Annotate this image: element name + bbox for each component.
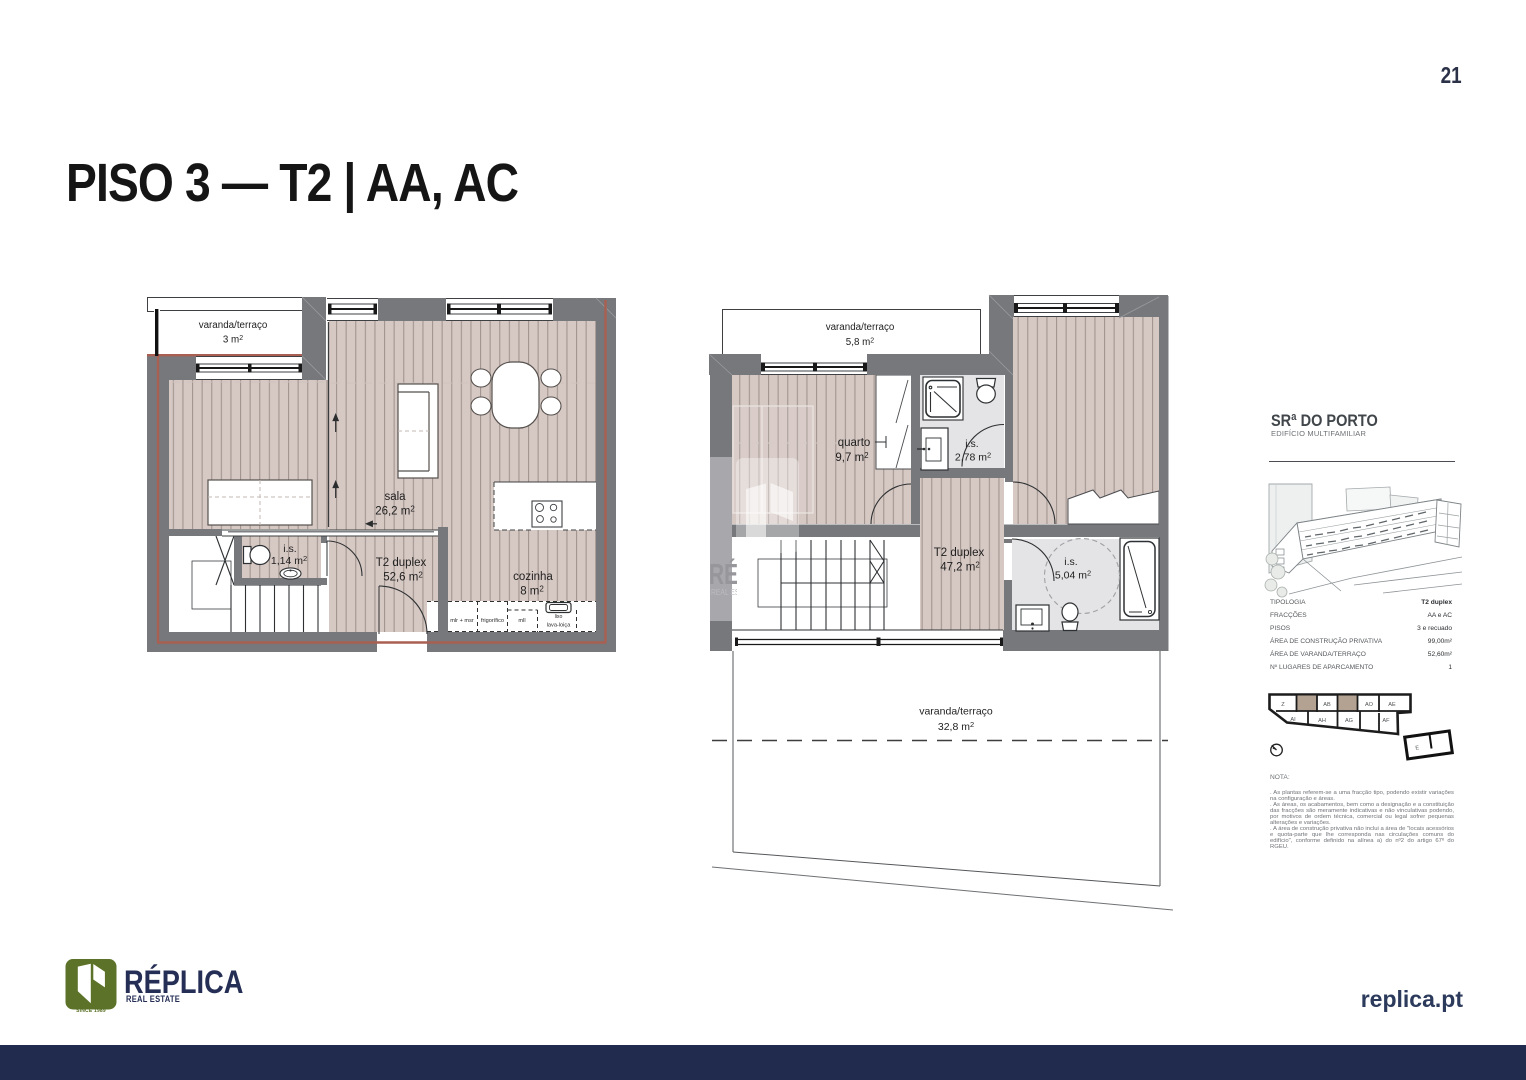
svg-text:9,7 m2: 9,7 m2	[835, 451, 869, 464]
svg-text:i.s.: i.s.	[283, 543, 296, 555]
svg-text:REAL ESTATE: REAL ESTATE	[711, 587, 756, 597]
svg-text:AO: AO	[1365, 702, 1374, 708]
svg-text:32,8 m2: 32,8 m2	[938, 720, 974, 733]
svg-text:mlr + msr: mlr + msr	[450, 618, 474, 624]
svg-text:5,8 m2: 5,8 m2	[846, 337, 875, 348]
svg-text:Z: Z	[1281, 702, 1285, 708]
svg-text:frigorífico: frigorífico	[481, 618, 504, 624]
svg-text:26,2 m2: 26,2 m2	[375, 505, 415, 518]
svg-text:2,78 m2: 2,78 m2	[955, 451, 991, 464]
svg-text:1,14 m2: 1,14 m2	[271, 554, 307, 567]
svg-text:AI: AI	[1290, 717, 1296, 723]
svg-text:sala: sala	[384, 491, 406, 503]
svg-text:RÉPLICA: RÉPLICA	[709, 558, 801, 591]
svg-text:i.s.: i.s.	[965, 438, 978, 450]
svg-text:varanda/terraço: varanda/terraço	[826, 322, 895, 333]
svg-text:varanda/terraço: varanda/terraço	[199, 320, 268, 331]
svg-text:lixo: lixo	[555, 614, 563, 620]
svg-text:varanda/terraço: varanda/terraço	[919, 706, 993, 718]
svg-text:cozinha: cozinha	[513, 571, 553, 583]
svg-text:mll: mll	[518, 618, 525, 624]
svg-text:T2 duplex: T2 duplex	[934, 547, 985, 559]
svg-text:i.s.: i.s.	[1064, 556, 1077, 568]
svg-text:AB: AB	[1323, 702, 1331, 708]
svg-text:52,6 m2: 52,6 m2	[383, 571, 423, 584]
svg-text:AF: AF	[1382, 718, 1390, 724]
svg-text:AH: AH	[1318, 718, 1326, 724]
svg-text:AE: AE	[1388, 702, 1396, 708]
svg-text:quarto: quarto	[838, 437, 871, 449]
svg-text:lava-loiça: lava-loiça	[547, 623, 572, 629]
svg-text:47,2 m2: 47,2 m2	[940, 561, 980, 574]
svg-text:T2 duplex: T2 duplex	[376, 557, 427, 569]
svg-text:AG: AG	[1345, 718, 1353, 724]
svg-text:5,04 m2: 5,04 m2	[1055, 569, 1091, 582]
svg-text:3 m2: 3 m2	[223, 335, 243, 346]
